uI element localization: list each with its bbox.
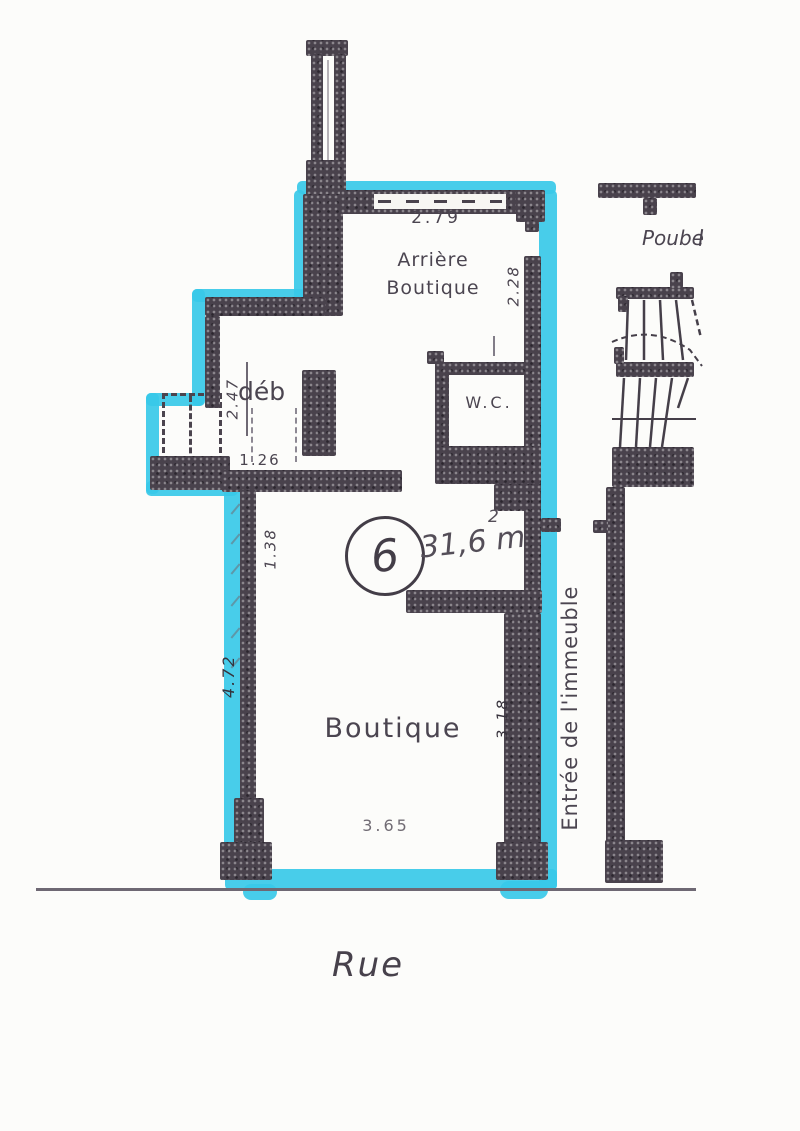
dimension-boutique-right: 3.18 (494, 687, 511, 751)
pier-right-foot (496, 842, 548, 880)
label-poubelles: Poube (642, 227, 704, 250)
dimension-arriere-depth: 2.28 (505, 254, 522, 318)
street-line (36, 888, 696, 891)
window-dashes (378, 200, 502, 203)
highlight-blob-left (243, 884, 277, 900)
corridor-foot (605, 840, 663, 883)
top-window-glass-line (327, 60, 329, 160)
wall-top-right (598, 183, 696, 198)
wall-deb-west (205, 316, 220, 408)
room-label-arriere-boutique: Arrière Boutique (360, 246, 506, 302)
wall-closet-block (150, 456, 230, 490)
highlight-deb-left (192, 289, 205, 406)
floor-plan-scan: 2.79 Arrière Boutique 2.28 déb 2.47 1.26… (0, 0, 800, 1131)
wall-corridor-east (606, 487, 625, 843)
area-value: 31,6 m (418, 521, 527, 566)
closet-dashed-divider (189, 396, 192, 462)
room-label-wc: W.C. (456, 394, 522, 412)
dim-guide-1-26-right (295, 408, 297, 462)
street-label-rue: Rue (332, 946, 404, 985)
arriere-line-1: Arrière (360, 246, 506, 274)
unit-number-badge: 6 (345, 516, 425, 596)
dimension-deb-depth: 2.47 (224, 367, 241, 431)
wall-deb-south (222, 470, 402, 492)
room-label-deb: déb (238, 378, 285, 407)
wall-top-right-stub (643, 198, 657, 215)
wall-right-upper (524, 256, 541, 460)
wall-top-window-right (334, 54, 346, 166)
wall-vestibule-stub (494, 484, 531, 511)
wall-vestibule-south (406, 590, 542, 613)
dimension-boutique-upper-left: 1.38 (262, 517, 279, 581)
dim-guide-2-28 (493, 336, 495, 356)
wall-wc-door-stub (427, 351, 444, 364)
dimension-deb-width: 1.26 (226, 452, 294, 469)
pier-left-foot (220, 842, 272, 880)
pier-left-top (234, 798, 264, 844)
wall-wc-north (435, 362, 525, 375)
label-entree-immeuble: Entrée de l'immeuble (558, 571, 582, 845)
arriere-window (374, 194, 506, 209)
wall-deb-north (205, 297, 325, 316)
wall-right-top-stub (525, 220, 539, 232)
wall-top-window-left (311, 54, 323, 166)
area-exponent: 2 (488, 508, 499, 528)
dimension-storefront-width: 3.65 (338, 817, 434, 835)
room-label-boutique: Boutique (322, 713, 464, 744)
wall-wc-west (435, 362, 449, 450)
arriere-line-2: Boutique (360, 274, 506, 302)
staircase-treads (600, 280, 710, 490)
wall-wc-south (435, 446, 541, 484)
wall-boutique-west (240, 490, 256, 842)
area-annotation: 31,6 m 2 (420, 512, 550, 576)
unit-number: 6 (368, 529, 401, 583)
dimension-arriere-width: 2.79 (398, 209, 474, 229)
wall-corridor-stub (593, 520, 608, 533)
wall-right-top-corner (516, 190, 545, 222)
wall-deb-divider (302, 370, 336, 456)
dimension-boutique-left: 4.72 (220, 644, 238, 708)
